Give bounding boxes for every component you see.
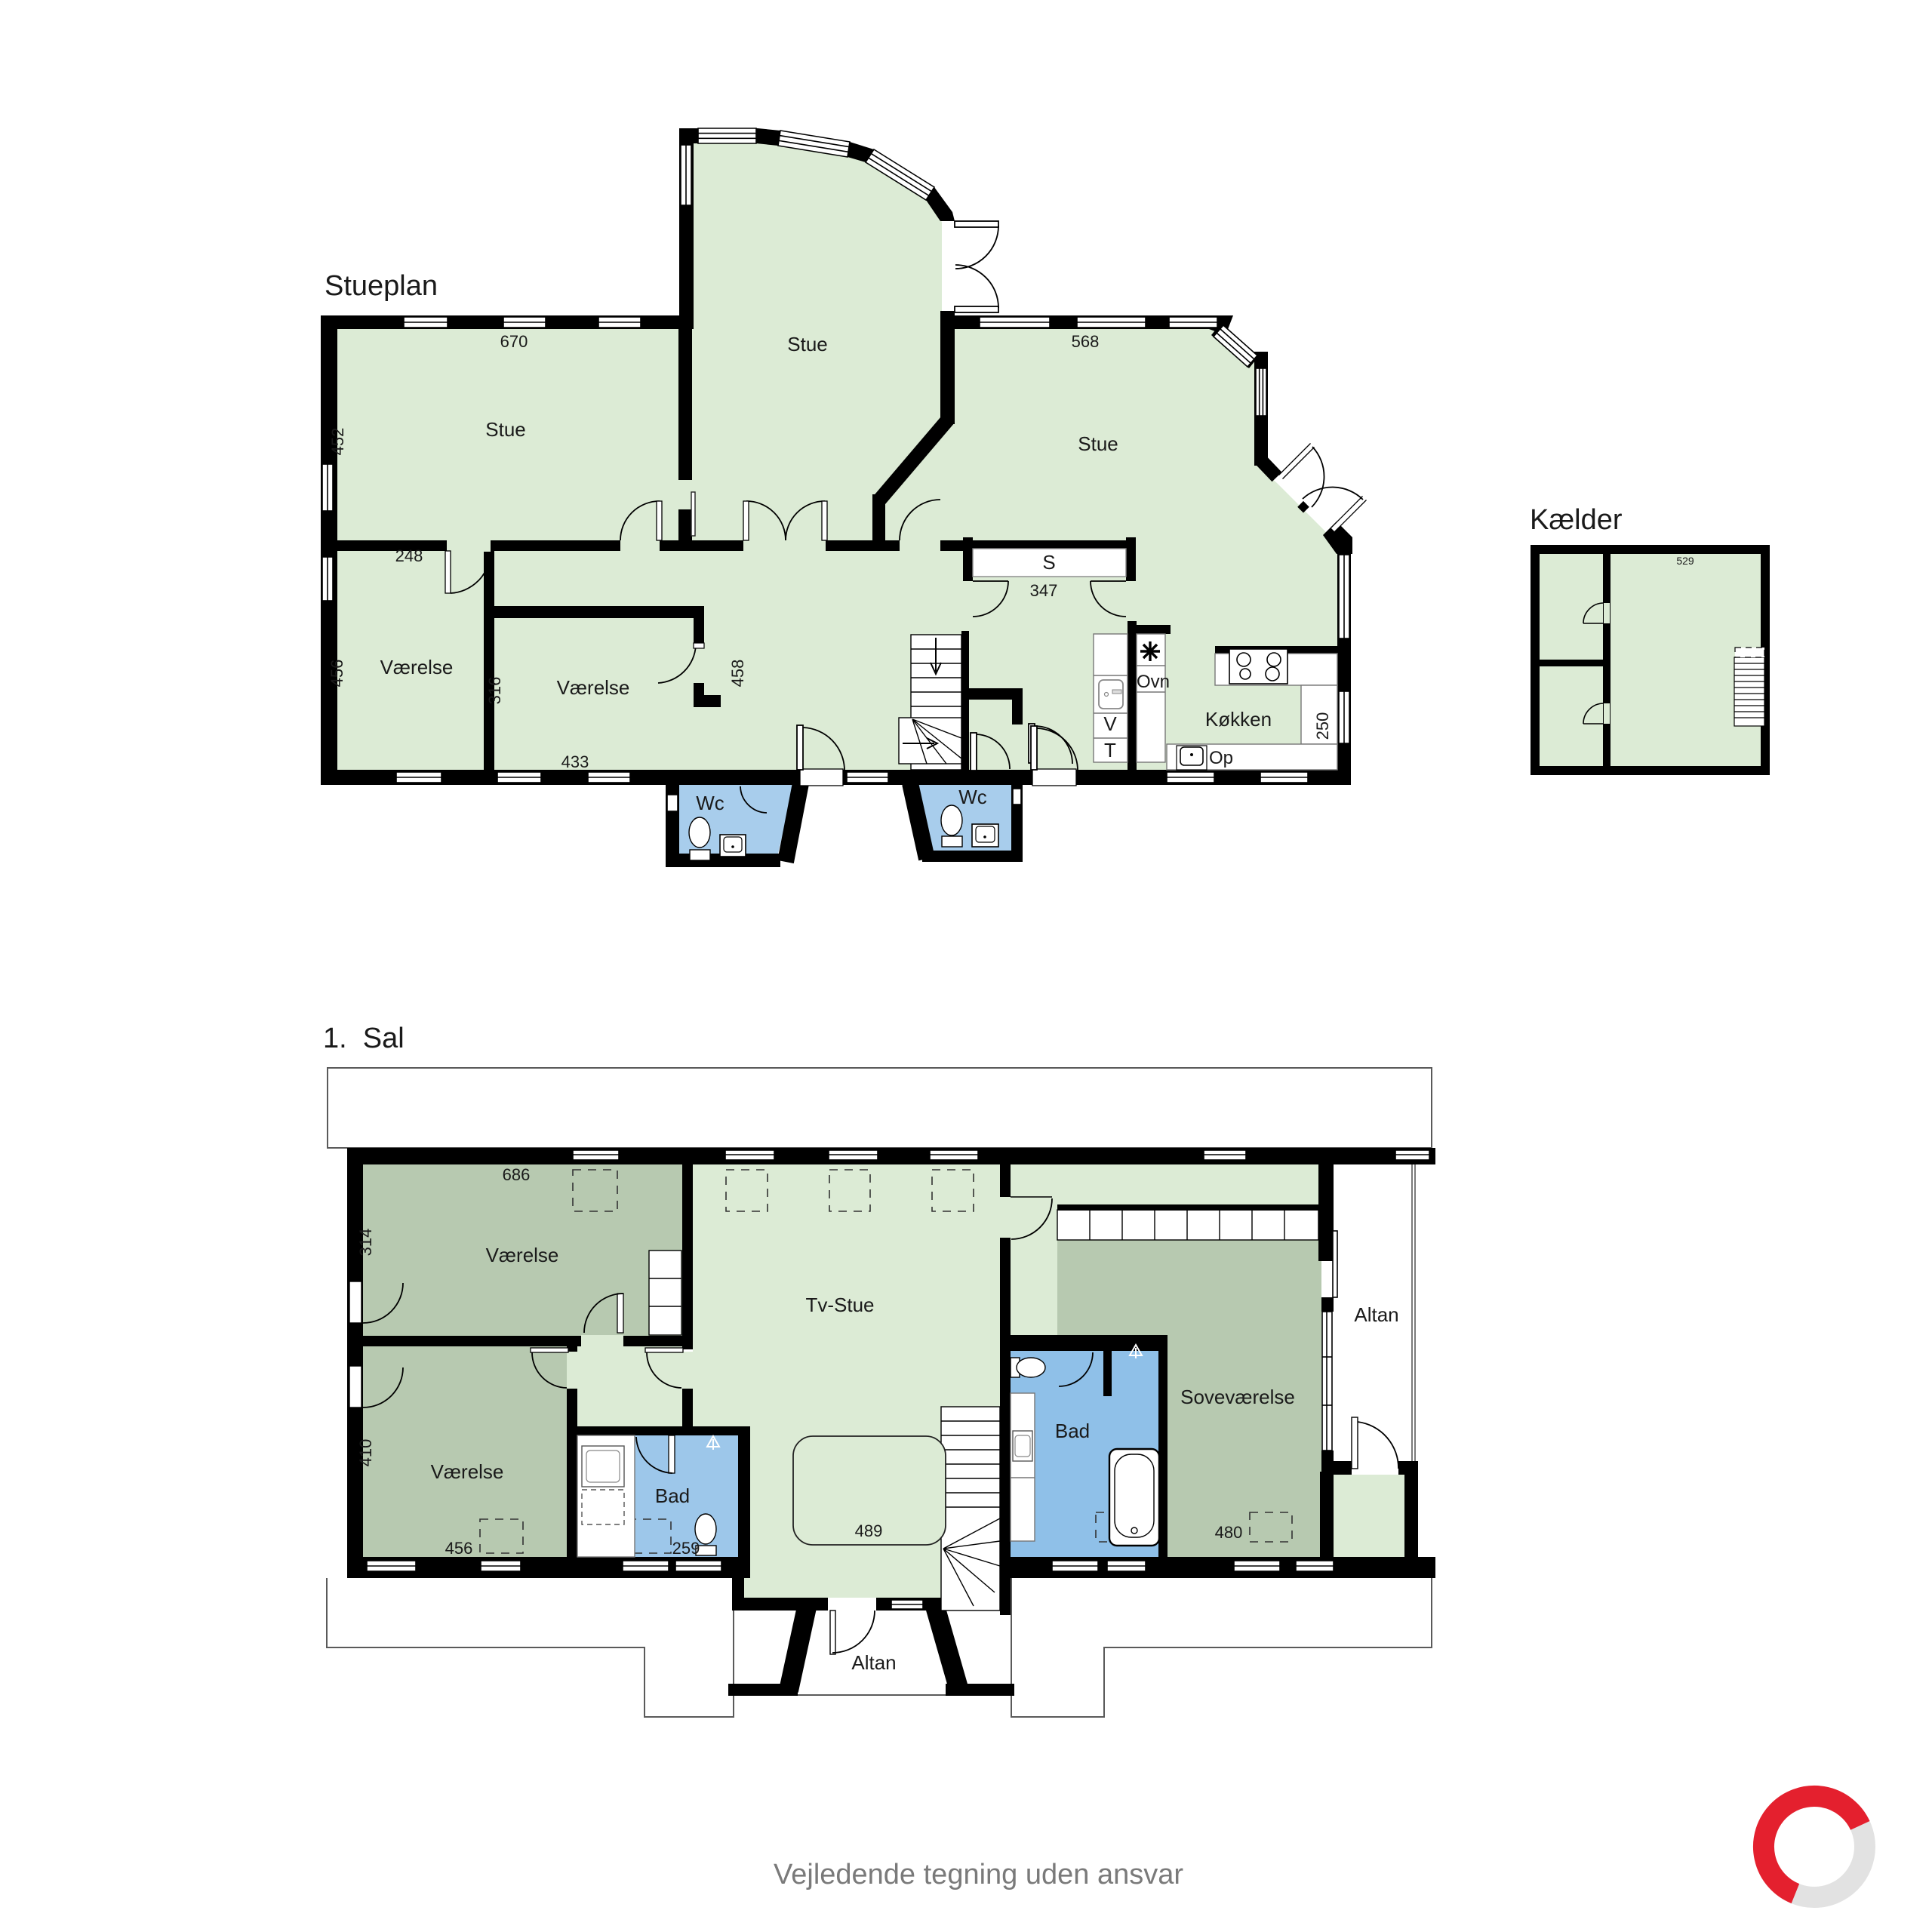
svg-text:Kælder: Kælder	[1530, 504, 1623, 536]
svg-text:Stue: Stue	[787, 333, 828, 355]
svg-text:433: 433	[561, 752, 589, 771]
svg-text:Stue: Stue	[1078, 432, 1118, 455]
svg-text:480: 480	[1215, 1523, 1243, 1542]
svg-text:568: 568	[1072, 332, 1100, 351]
svg-text:250: 250	[1313, 712, 1332, 740]
svg-text:Værelse: Værelse	[380, 656, 454, 678]
svg-text:Altan: Altan	[851, 1651, 896, 1674]
svg-text:314: 314	[356, 1229, 375, 1257]
svg-text:Værelse: Værelse	[486, 1244, 559, 1266]
svg-text:347: 347	[1030, 581, 1058, 600]
svg-text:452: 452	[328, 428, 347, 456]
svg-text:Wc: Wc	[696, 792, 724, 814]
svg-text:Bad: Bad	[655, 1484, 690, 1507]
svg-text:T: T	[1104, 739, 1116, 761]
svg-text:S: S	[1042, 551, 1055, 574]
svg-text:Stue: Stue	[485, 418, 526, 441]
svg-text:316: 316	[485, 677, 504, 705]
svg-text:Køkken: Køkken	[1205, 708, 1272, 731]
svg-text:410: 410	[356, 1439, 375, 1467]
svg-text:489: 489	[855, 1521, 883, 1540]
svg-text:248: 248	[395, 546, 423, 565]
svg-text:529: 529	[1676, 555, 1694, 567]
svg-text:Bad: Bad	[1055, 1420, 1090, 1442]
svg-text:670: 670	[500, 332, 528, 351]
svg-text:686: 686	[503, 1165, 531, 1184]
svg-text:Soveværelse: Soveværelse	[1180, 1386, 1295, 1408]
svg-text:Stueplan: Stueplan	[325, 270, 438, 302]
svg-text:456: 456	[328, 660, 346, 688]
svg-text:456: 456	[445, 1539, 473, 1558]
svg-text:458: 458	[728, 660, 747, 688]
svg-text:Værelse: Værelse	[431, 1460, 504, 1483]
svg-text:1. Sal: 1. Sal	[323, 1023, 405, 1054]
svg-text:Tv-Stue: Tv-Stue	[805, 1294, 874, 1316]
svg-text:V: V	[1103, 712, 1117, 735]
svg-text:Ovn: Ovn	[1137, 672, 1170, 692]
svg-text:Altan: Altan	[1354, 1303, 1398, 1326]
svg-text:Vejledende tegning uden ansvar: Vejledende tegning uden ansvar	[774, 1859, 1183, 1890]
svg-text:259: 259	[672, 1539, 700, 1558]
svg-text:Op: Op	[1209, 748, 1233, 768]
svg-text:Værelse: Værelse	[557, 676, 630, 699]
svg-text:Wc: Wc	[958, 786, 987, 808]
